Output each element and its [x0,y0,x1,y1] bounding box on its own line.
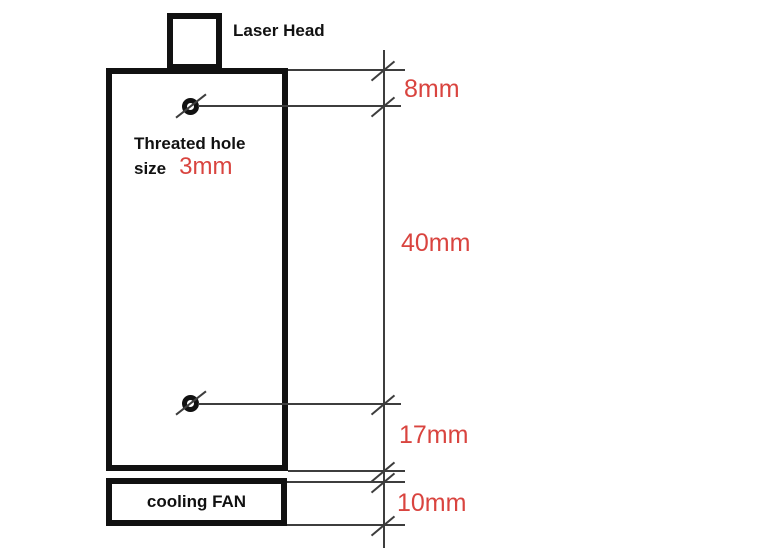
laser-head-label: Laser Head [233,21,325,41]
extension-line-body-bottom [288,470,405,472]
dimension-label-40mm: 40mm [401,229,470,258]
module-body-outline [106,68,288,471]
threaded-hole-size-value: 3mm [179,155,232,178]
cooling-fan-label: cooling FAN [147,492,246,512]
cooling-fan-label-wrap: cooling FAN [112,484,281,520]
extension-line-fan-top [287,481,405,483]
dimension-label-17mm: 17mm [399,421,468,450]
dimension-label-8mm: 8mm [404,75,460,104]
dimension-line-vertical [383,50,385,548]
extension-line-hole-top [198,105,401,107]
threaded-hole-note: Threated hole size 3mm [134,132,245,180]
extension-line-hole-bottom [198,403,401,405]
threaded-hole-note-line2: size 3mm [134,155,245,180]
threaded-hole-note-line1: Threated hole [134,132,245,155]
threaded-hole-size-word: size [134,157,166,180]
dimension-label-10mm: 10mm [397,489,466,518]
laser-module-diagram: Laser Head Threated hole size 3mm coolin… [0,0,768,556]
laser-head-outline [167,13,222,70]
extension-line-body-top [288,69,405,71]
extension-line-fan-bottom [287,524,405,526]
